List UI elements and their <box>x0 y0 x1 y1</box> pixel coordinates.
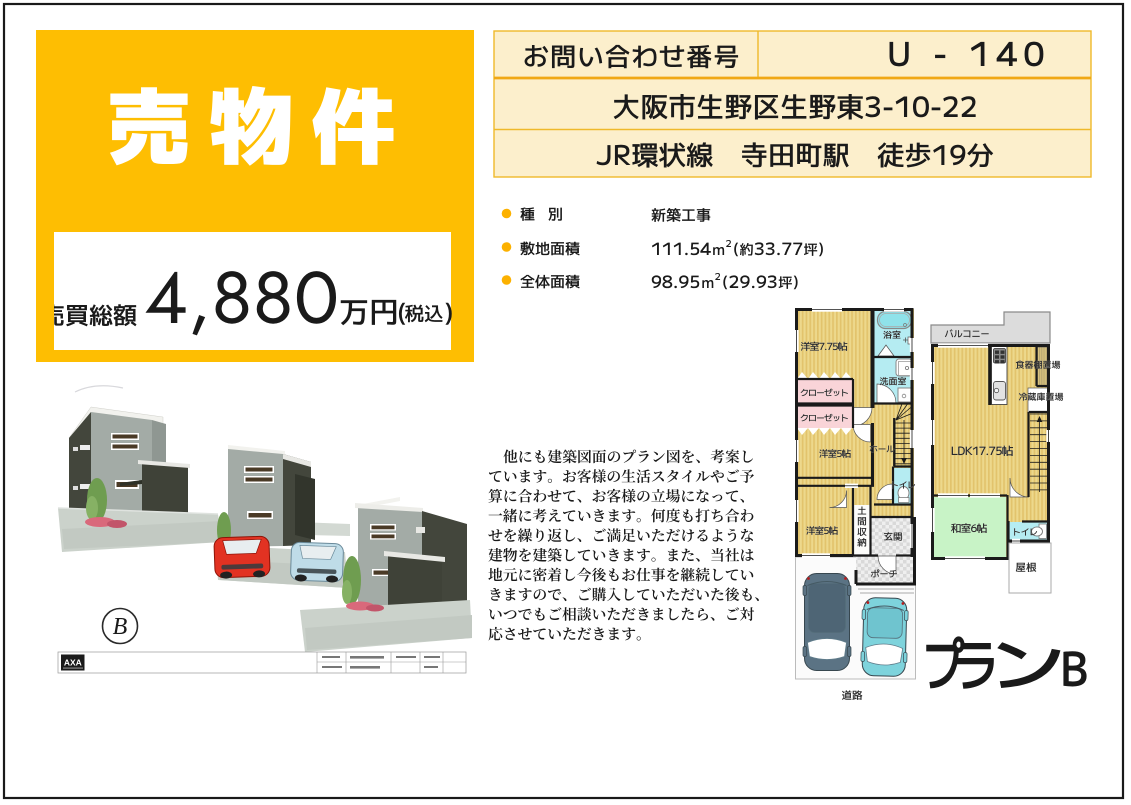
svg-text:B: B <box>113 614 128 640</box>
svg-text:AXA: AXA <box>64 658 82 668</box>
